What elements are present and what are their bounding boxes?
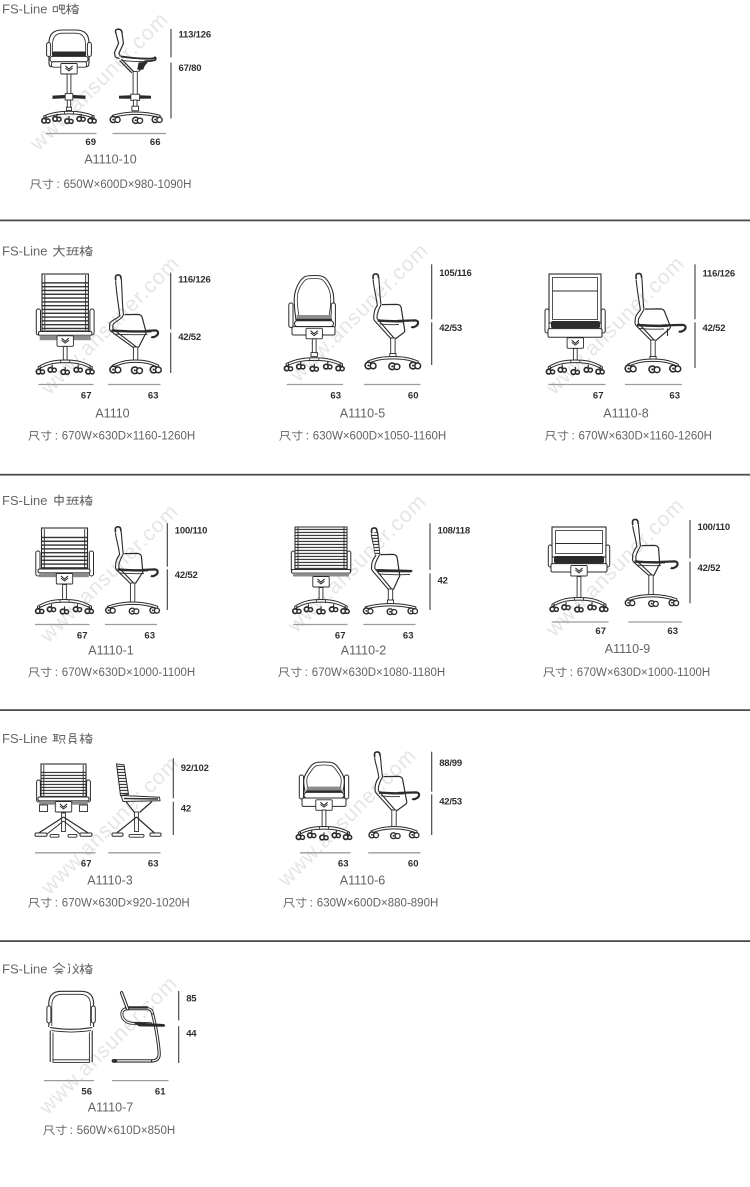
svg-text:105/116: 105/116 (439, 268, 471, 279)
svg-text:60: 60 (408, 391, 419, 402)
svg-text:670W×630D×1000-1100H: 670W×630D×1000-1100H (577, 667, 710, 679)
svg-text:67: 67 (81, 391, 92, 402)
svg-text:63: 63 (403, 631, 414, 642)
svg-text::: : (55, 431, 58, 443)
svg-text:85: 85 (186, 994, 197, 1005)
svg-text:FS-Line: FS-Line (2, 731, 48, 746)
svg-text:92/102: 92/102 (181, 763, 209, 774)
svg-text:A1110-7: A1110-7 (88, 1101, 133, 1115)
svg-text:67: 67 (595, 626, 606, 637)
svg-text:560W×610D×850H: 560W×610D×850H (77, 1125, 175, 1137)
svg-text:670W×630D×1000-1100H: 670W×630D×1000-1100H (62, 667, 195, 679)
svg-text:67: 67 (81, 859, 92, 870)
svg-text:61: 61 (155, 1087, 166, 1098)
svg-text::: : (306, 431, 309, 443)
svg-text:A1110-5: A1110-5 (340, 407, 385, 421)
svg-text:42/52: 42/52 (175, 570, 198, 581)
svg-text:67: 67 (593, 391, 604, 402)
svg-text:60: 60 (408, 859, 419, 870)
svg-text:FS-Line: FS-Line (2, 2, 48, 17)
svg-text:63: 63 (338, 859, 349, 870)
svg-text::: : (55, 898, 58, 910)
svg-text:100/110: 100/110 (175, 526, 207, 537)
svg-text:42/52: 42/52 (698, 563, 721, 574)
svg-text:42/53: 42/53 (439, 323, 462, 334)
svg-text::: : (570, 667, 573, 679)
svg-text:67: 67 (77, 631, 88, 642)
svg-text:42/52: 42/52 (178, 332, 201, 343)
svg-text:108/118: 108/118 (438, 526, 470, 537)
svg-text:67/80: 67/80 (179, 63, 202, 74)
svg-text:42: 42 (438, 576, 448, 587)
svg-text:A1110-3: A1110-3 (87, 874, 132, 888)
svg-text:FS-Line: FS-Line (2, 244, 48, 259)
svg-text:42/53: 42/53 (439, 797, 462, 808)
svg-text:A1110-9: A1110-9 (605, 642, 650, 656)
svg-text::: : (55, 667, 58, 679)
svg-text:670W×630D×920-1020H: 670W×630D×920-1020H (62, 898, 190, 910)
svg-text:A1110-6: A1110-6 (340, 874, 385, 888)
svg-text::: : (305, 667, 308, 679)
svg-text:670W×630D×1080-1180H: 670W×630D×1080-1180H (312, 667, 445, 679)
svg-text:670W×630D×1160-1260H: 670W×630D×1160-1260H (579, 431, 712, 443)
svg-text:FS-Line: FS-Line (2, 493, 48, 508)
svg-text:63: 63 (148, 391, 159, 402)
svg-text:FS-Line: FS-Line (2, 962, 48, 977)
svg-text:A1110-2: A1110-2 (341, 644, 386, 658)
svg-text:630W×600D×1050-1160H: 630W×600D×1050-1160H (313, 431, 446, 443)
svg-text:44: 44 (186, 1029, 197, 1040)
svg-text::: : (57, 179, 60, 191)
svg-text:A1110: A1110 (95, 407, 129, 421)
svg-text:42/52: 42/52 (703, 323, 726, 334)
svg-text:63: 63 (667, 626, 678, 637)
svg-text::: : (572, 431, 575, 443)
svg-text:A1110-8: A1110-8 (603, 407, 648, 421)
svg-text::: : (310, 898, 313, 910)
svg-text:63: 63 (144, 631, 155, 642)
svg-text:113/126: 113/126 (179, 30, 211, 41)
svg-text::: : (70, 1125, 73, 1137)
svg-text:116/126: 116/126 (178, 275, 210, 286)
svg-text:A1110-1: A1110-1 (88, 644, 133, 658)
svg-text:630W×600D×880-890H: 630W×600D×880-890H (317, 898, 438, 910)
svg-text:56: 56 (81, 1087, 92, 1098)
svg-text:63: 63 (669, 391, 680, 402)
svg-text:69: 69 (85, 137, 96, 148)
svg-text:670W×630D×1160-1260H: 670W×630D×1160-1260H (62, 431, 195, 443)
svg-text:63: 63 (330, 391, 341, 402)
svg-text:116/126: 116/126 (703, 269, 735, 280)
svg-text:63: 63 (148, 859, 159, 870)
svg-text:650W×600D×980-1090H: 650W×600D×980-1090H (64, 179, 192, 191)
svg-text:88/99: 88/99 (439, 758, 462, 769)
svg-text:A1110-10: A1110-10 (84, 153, 136, 167)
svg-text:100/110: 100/110 (698, 522, 730, 533)
svg-text:66: 66 (150, 137, 161, 148)
svg-text:42: 42 (181, 804, 191, 815)
svg-text:67: 67 (335, 631, 346, 642)
